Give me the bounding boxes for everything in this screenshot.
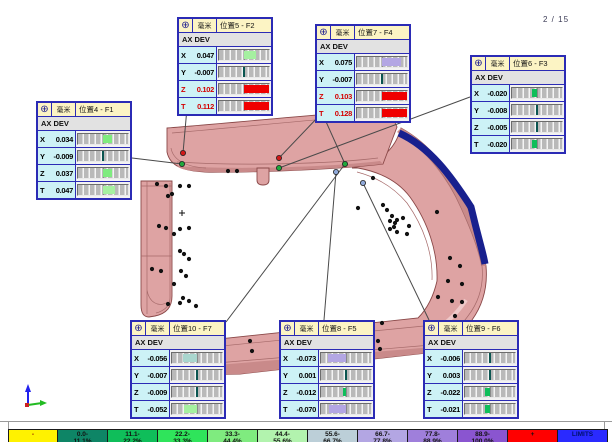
axis-value-cell: T0.047	[38, 182, 76, 198]
measurement-point[interactable]	[250, 349, 254, 353]
callout-header: ⊕毫米位置7 - F4	[317, 26, 409, 40]
measurement-point[interactable]	[395, 218, 399, 222]
axis-letter: Z	[283, 388, 292, 397]
measurement-point[interactable]	[159, 269, 163, 273]
measurement-point[interactable]	[448, 256, 452, 260]
deviation-tick	[536, 122, 538, 132]
axis-letter: T	[319, 109, 328, 118]
bar-cell	[355, 71, 409, 87]
scale-cell-line1: 88.9-	[475, 431, 490, 438]
plus-mark	[179, 210, 185, 216]
measurement-point[interactable]	[226, 169, 230, 173]
unit-label: 毫米	[331, 26, 355, 39]
deviation-tick	[536, 105, 538, 115]
bar-cell	[463, 350, 517, 366]
scale-cell-line2: 11.1%	[73, 438, 91, 442]
axis-letter: T	[474, 140, 483, 149]
axis-value-cell: Y0.001	[281, 367, 319, 383]
deviation-row-y: Y-0.008	[472, 102, 564, 119]
callout-title: 位置6 - F3	[510, 57, 564, 70]
triad-up-arrow	[25, 384, 31, 392]
measurement-point[interactable]	[184, 274, 188, 278]
deviation-tick	[196, 370, 198, 380]
statusbar-divider	[0, 421, 612, 422]
deviation-value: -0.022	[436, 388, 460, 397]
bar-cell	[510, 119, 564, 135]
scale-cell-line2: 44.4%	[223, 438, 241, 442]
measurement-point[interactable]	[164, 226, 168, 230]
deviation-value: 0.102	[190, 85, 214, 94]
scale-cell-line1: 33.3-	[225, 431, 240, 438]
measurement-point[interactable]	[385, 208, 389, 212]
axis-value-cell: Z-0.012	[281, 384, 319, 400]
scale-cell-9: 88.9-100.0%	[458, 429, 508, 442]
measurement-point[interactable]	[182, 252, 186, 256]
scale-cell-line2: 33.3%	[173, 438, 191, 442]
deviation-value: -0.007	[190, 68, 214, 77]
axis-value-cell: Z-0.005	[472, 119, 510, 135]
triad-right-arrow	[40, 400, 47, 406]
axis-letter: Z	[427, 388, 436, 397]
measurement-point[interactable]	[194, 304, 198, 308]
bar-cell	[510, 102, 564, 118]
callout-header: ⊕毫米位置9 - F6	[425, 322, 517, 336]
scale-cell-line2: 77.8%	[373, 438, 391, 442]
scale-cell-11: LIMITS	[558, 429, 608, 442]
deviation-row-x: X-0.006	[425, 350, 517, 367]
callout-title: 位置8 - F5	[319, 322, 373, 335]
measurement-point[interactable]	[450, 299, 454, 303]
axis-letter: X	[474, 89, 483, 98]
section-label: AX DEV	[281, 336, 373, 350]
callout-header: ⊕毫米位置6 - F3	[472, 57, 564, 71]
deviation-row-x: X0.047	[179, 47, 271, 64]
tolerance-bar-track	[511, 104, 563, 116]
scale-cell-6: 55.6-66.7%	[308, 429, 358, 442]
tolerance-bar-track	[356, 90, 408, 102]
axis-value-cell: T0.112	[179, 98, 217, 114]
axis-letter: X	[427, 354, 436, 363]
scale-cell-line2: 66.7%	[323, 438, 341, 442]
axis-letter: Z	[40, 169, 49, 178]
deviation-bar	[382, 58, 401, 66]
deviation-row-t: T0.112	[179, 98, 271, 114]
bar-cell	[510, 136, 564, 152]
measurement-point[interactable]	[164, 184, 168, 188]
axis-letter: Y	[40, 152, 49, 161]
tolerance-bar-track	[171, 403, 223, 415]
deviation-value: 0.112	[190, 102, 214, 111]
unit-label: 毫米	[295, 322, 319, 335]
anchor-dot[interactable]	[179, 161, 184, 166]
deviation-row-t: T0.047	[38, 182, 130, 198]
measurement-callout-F4[interactable]: ⊕毫米位置7 - F4AX DEVX0.075Y-0.007Z0.103T0.1…	[315, 24, 411, 123]
axis-value-cell: X0.034	[38, 131, 76, 147]
axis-value-cell: T-0.021	[425, 401, 463, 417]
axis-value-cell: X-0.056	[132, 350, 170, 366]
measurement-point[interactable]	[371, 176, 375, 180]
measurement-point[interactable]	[446, 279, 450, 283]
measurement-point[interactable]	[178, 301, 182, 305]
axis-value-cell: X-0.020	[472, 85, 510, 101]
measurement-point[interactable]	[157, 224, 161, 228]
deviation-value: 0.047	[190, 51, 214, 60]
measurement-point[interactable]	[170, 192, 174, 196]
tolerance-bar-track	[320, 352, 372, 364]
deviation-value: -0.006	[436, 354, 460, 363]
bar-cell	[319, 350, 373, 366]
deviation-row-z: Z-0.012	[281, 384, 373, 401]
scale-cell-2: 11.1-22.2%	[108, 429, 158, 442]
axis-value-cell: Z0.103	[317, 88, 355, 104]
axis-letter: X	[283, 354, 292, 363]
scale-cell-1: 0.0-11.1%	[58, 429, 108, 442]
axis-letter: Y	[319, 75, 328, 84]
measurement-point[interactable]	[380, 321, 384, 325]
measurement-point[interactable]	[376, 339, 380, 343]
callout-title: 位置9 - F6	[463, 322, 517, 335]
deviation-value: -0.008	[483, 106, 507, 115]
measurement-point[interactable]	[435, 210, 439, 214]
bar-center-line	[490, 404, 491, 414]
axis-value-cell: X-0.006	[425, 350, 463, 366]
scale-cell-line1: 0.0-	[77, 431, 88, 438]
tolerance-bar-track	[511, 87, 563, 99]
callout-header: ⊕毫米位置4 - F1	[38, 103, 130, 117]
deviation-bar	[244, 85, 269, 93]
deviation-bar	[184, 405, 197, 413]
bar-cell	[217, 98, 271, 114]
tolerance-bar-track	[511, 138, 563, 150]
unit-label: 毫米	[193, 19, 217, 32]
section-label: AX DEV	[472, 71, 564, 85]
measurement-callout-F7[interactable]: ⊕毫米位置10 - F7AX DEVX-0.056Y-0.007Z-0.009T…	[130, 320, 226, 419]
measurement-point[interactable]	[178, 249, 182, 253]
tolerance-bar-track	[464, 369, 516, 381]
anchor-dot[interactable]	[180, 150, 185, 155]
deviation-tick	[243, 67, 245, 77]
section-label: AX DEV	[425, 336, 517, 350]
deviation-value: 0.034	[49, 135, 73, 144]
axis-letter: Y	[283, 371, 292, 380]
section-label: AX DEV	[179, 33, 271, 47]
scale-cell-7: 66.7-77.8%	[358, 429, 408, 442]
section-label: AX DEV	[317, 40, 409, 54]
deviation-value: -0.052	[143, 405, 167, 414]
bar-cell	[463, 401, 517, 417]
scale-cell-line1: LIMITS	[572, 431, 593, 438]
measurement-point[interactable]	[388, 227, 392, 231]
bar-cell	[463, 384, 517, 400]
axis-value-cell: Z0.037	[38, 165, 76, 181]
scale-cell-0: -	[8, 429, 58, 442]
deviation-value: -0.020	[483, 89, 507, 98]
deviation-value: -0.005	[483, 123, 507, 132]
axis-value-cell: X-0.073	[281, 350, 319, 366]
scale-cell-3: 22.2-33.3%	[158, 429, 208, 442]
deviation-value: -0.012	[292, 388, 316, 397]
measurement-callout-F5[interactable]: ⊕毫米位置8 - F5AX DEVX-0.073Y0.001Z-0.012T-0…	[279, 320, 375, 419]
bar-center-line	[197, 404, 198, 414]
target-icon: ⊕	[132, 322, 146, 335]
deviation-row-y: Y-0.007	[179, 64, 271, 81]
callout-header: ⊕毫米位置5 - F2	[179, 19, 271, 33]
scale-cell-line2: 100.0%	[471, 438, 493, 442]
callout-header: ⊕毫米位置8 - F5	[281, 322, 373, 336]
axis-value-cell: Z-0.022	[425, 384, 463, 400]
deviation-tick	[345, 370, 347, 380]
tolerance-bar-track	[218, 66, 270, 78]
axis-letter: X	[319, 58, 328, 67]
deviation-row-t: T-0.021	[425, 401, 517, 417]
axis-letter: Z	[319, 92, 328, 101]
deviation-bar	[382, 92, 407, 100]
axis-letter: T	[283, 405, 292, 414]
measurement-point[interactable]	[390, 214, 394, 218]
axis-letter: T	[40, 186, 49, 195]
scale-cell-line1: 44.4-	[275, 431, 290, 438]
scale-cell-line2: 88.9%	[423, 438, 441, 442]
measurement-point[interactable]	[187, 299, 191, 303]
axis-letter: T	[181, 102, 190, 111]
page-indicator: 2 / 15	[543, 15, 569, 24]
callout-title: 位置10 - F7	[170, 322, 224, 335]
deviation-tick	[102, 151, 104, 161]
scale-cell-line1: 11.1-	[125, 431, 139, 438]
bar-center-line	[346, 387, 347, 397]
measurement-point[interactable]	[388, 219, 392, 223]
deviation-value: -0.007	[328, 75, 352, 84]
scale-cell-line1: 55.6-	[325, 431, 340, 438]
target-icon: ⊕	[38, 103, 52, 116]
bar-cell	[76, 148, 130, 164]
deviation-row-t: T0.128	[317, 105, 409, 121]
measurement-point[interactable]	[381, 203, 385, 207]
measurement-point[interactable]	[187, 257, 191, 261]
target-icon: ⊕	[425, 322, 439, 335]
axis-letter: Z	[181, 85, 190, 94]
deviation-row-y: Y0.001	[281, 367, 373, 384]
deviation-color-scale: -0.0-11.1%11.1-22.2%22.2-33.3%33.3-44.4%…	[8, 429, 608, 442]
bar-cell	[217, 81, 271, 97]
measurement-point[interactable]	[460, 300, 464, 304]
deviation-row-t: T-0.070	[281, 401, 373, 417]
deviation-value: -0.073	[292, 354, 316, 363]
deviation-row-z: Z-0.009	[132, 384, 224, 401]
deviation-tick	[489, 353, 491, 363]
bar-center-line	[537, 139, 538, 149]
measurement-point[interactable]	[395, 230, 399, 234]
axis-letter: X	[181, 51, 190, 60]
measurement-point[interactable]	[235, 169, 239, 173]
bar-cell	[355, 54, 409, 70]
model-surface-left-strip	[141, 181, 172, 317]
section-label: AX DEV	[38, 117, 130, 131]
deviation-row-y: Y-0.007	[132, 367, 224, 384]
measurement-point[interactable]	[460, 282, 464, 286]
tolerance-bar-track	[356, 73, 408, 85]
unit-label: 毫米	[439, 322, 463, 335]
measurement-point[interactable]	[155, 182, 159, 186]
bar-cell	[217, 64, 271, 80]
measurement-point[interactable]	[166, 302, 170, 306]
anchor-dot[interactable]	[360, 180, 365, 185]
bar-cell	[510, 85, 564, 101]
measurement-point[interactable]	[187, 184, 191, 188]
axis-value-cell: Y-0.007	[179, 64, 217, 80]
deviation-bar	[103, 135, 112, 143]
scale-cell-line2: 22.2%	[123, 438, 141, 442]
scale-cell-4: 33.3-44.4%	[208, 429, 258, 442]
deviation-value: 0.075	[328, 58, 352, 67]
tolerance-bar-track	[464, 386, 516, 398]
bar-center-line	[346, 404, 347, 414]
tolerance-bar-track	[320, 403, 372, 415]
measurement-point[interactable]	[187, 226, 191, 230]
tolerance-bar-track	[77, 150, 129, 162]
deviation-bar	[183, 354, 197, 362]
deviation-row-x: X-0.056	[132, 350, 224, 367]
measurement-point[interactable]	[453, 314, 457, 318]
tolerance-bar-track	[77, 167, 129, 179]
scale-cell-line1: 22.2-	[175, 431, 190, 438]
tolerance-bar-track	[356, 56, 408, 68]
bar-cell	[319, 401, 373, 417]
target-icon: ⊕	[472, 57, 486, 70]
anchor-dot[interactable]	[276, 155, 281, 160]
bar-cell	[355, 105, 409, 121]
deviation-value: 0.047	[49, 186, 73, 195]
measurement-point[interactable]	[356, 206, 360, 210]
measurement-point[interactable]	[436, 295, 440, 299]
axis-value-cell: T-0.052	[132, 401, 170, 417]
deviation-value: -0.009	[143, 388, 167, 397]
deviation-tick	[489, 370, 491, 380]
callout-header: ⊕毫米位置10 - F7	[132, 322, 224, 336]
anchor-dot[interactable]	[342, 161, 347, 166]
deviation-row-y: Y-0.009	[38, 148, 130, 165]
deviation-value: -0.020	[483, 140, 507, 149]
measurement-point[interactable]	[405, 232, 409, 236]
deviation-row-x: X0.075	[317, 54, 409, 71]
callout-title: 位置7 - F4	[355, 26, 409, 39]
target-icon: ⊕	[317, 26, 331, 39]
deviation-bar	[485, 405, 490, 413]
axis-letter: Z	[134, 388, 143, 397]
measurement-point[interactable]	[392, 225, 396, 229]
deviation-value: 0.003	[436, 371, 460, 380]
measurement-point[interactable]	[401, 216, 405, 220]
scale-cell-line1: +	[531, 431, 535, 438]
measurement-point[interactable]	[179, 269, 183, 273]
bar-cell	[76, 165, 130, 181]
deviation-value: -0.021	[436, 405, 460, 414]
deviation-value: 0.037	[49, 169, 73, 178]
unit-label: 毫米	[52, 103, 76, 116]
tolerance-bar-track	[77, 184, 129, 196]
axis-letter: Y	[474, 106, 483, 115]
deviation-bar	[532, 140, 537, 148]
axis-value-cell: T0.128	[317, 105, 355, 121]
axis-value-cell: Y-0.008	[472, 102, 510, 118]
measurement-point[interactable]	[248, 339, 252, 343]
measurement-callout-F3[interactable]: ⊕毫米位置6 - F3AX DEVX-0.020Y-0.008Z-0.005T-…	[470, 55, 566, 154]
anchor-dot[interactable]	[333, 169, 338, 174]
deviation-row-z: Z-0.005	[472, 119, 564, 136]
bar-cell	[76, 182, 130, 198]
deviation-row-x: X0.034	[38, 131, 130, 148]
axis-letter: Y	[181, 68, 190, 77]
measurement-point[interactable]	[166, 194, 170, 198]
axis-value-cell: T-0.020	[472, 136, 510, 152]
axis-value-cell: Y-0.007	[317, 71, 355, 87]
tolerance-bar-track	[464, 352, 516, 364]
measurement-point[interactable]	[378, 347, 382, 351]
bar-cell	[355, 88, 409, 104]
triad-origin	[25, 403, 29, 407]
tolerance-bar-track	[320, 369, 372, 381]
deviation-bar	[328, 354, 346, 362]
measurement-point[interactable]	[150, 267, 154, 271]
axis-value-cell: T-0.070	[281, 401, 319, 417]
measurement-callout-F1[interactable]: ⊕毫米位置4 - F1AX DEVX0.034Y-0.009Z0.037T0.0…	[36, 101, 132, 200]
axis-value-cell: Y-0.007	[132, 367, 170, 383]
bar-cell	[170, 350, 224, 366]
scale-cell-8: 77.8-88.9%	[408, 429, 458, 442]
bar-cell	[170, 384, 224, 400]
measurement-point[interactable]	[181, 296, 185, 300]
tolerance-bar-track	[511, 121, 563, 133]
measurement-callout-F2[interactable]: ⊕毫米位置5 - F2AX DEVX0.047Y-0.007Z0.102T0.1…	[177, 17, 273, 116]
bar-cell	[76, 131, 130, 147]
inspection-report-page: ⊕毫米位置4 - F1AX DEVX0.034Y-0.009Z0.037T0.0…	[0, 0, 612, 442]
axis-value-cell: X0.047	[179, 47, 217, 63]
scale-cell-10: +	[508, 429, 558, 442]
tolerance-bar-track	[218, 49, 270, 61]
deviation-value: 0.128	[328, 109, 352, 118]
measurement-point[interactable]	[407, 224, 411, 228]
axis-letter: Z	[474, 123, 483, 132]
tolerance-bar-track	[464, 403, 516, 415]
tolerance-bar-track	[171, 352, 223, 364]
anchor-dot[interactable]	[276, 165, 281, 170]
scale-cell-line1: 77.8-	[425, 431, 440, 438]
bar-center-line	[346, 353, 347, 363]
measurement-point[interactable]	[178, 227, 182, 231]
axis-letter: T	[134, 405, 143, 414]
bar-center-line	[197, 353, 198, 363]
callout-title: 位置5 - F2	[217, 19, 271, 32]
measurement-point[interactable]	[178, 184, 182, 188]
axis-letter: Y	[134, 371, 143, 380]
deviation-row-y: Y-0.007	[317, 71, 409, 88]
scale-cell-line1: -	[32, 431, 34, 438]
measurement-point[interactable]	[172, 282, 176, 286]
deviation-row-z: Z0.103	[317, 88, 409, 105]
scale-cell-line2: 55.6%	[273, 438, 291, 442]
measurement-callout-F6[interactable]: ⊕毫米位置9 - F6AX DEVX-0.006Y0.003Z-0.022T-0…	[423, 320, 519, 419]
bar-center-line	[537, 88, 538, 98]
target-icon: ⊕	[281, 322, 295, 335]
deviation-tick	[196, 387, 198, 397]
deviation-value: -0.009	[49, 152, 73, 161]
axis-letter: X	[40, 135, 49, 144]
bar-cell	[217, 47, 271, 63]
measurement-point[interactable]	[172, 232, 176, 236]
deviation-row-t: T-0.052	[132, 401, 224, 417]
axis-value-cell: X0.075	[317, 54, 355, 70]
measurement-point[interactable]	[458, 264, 462, 268]
